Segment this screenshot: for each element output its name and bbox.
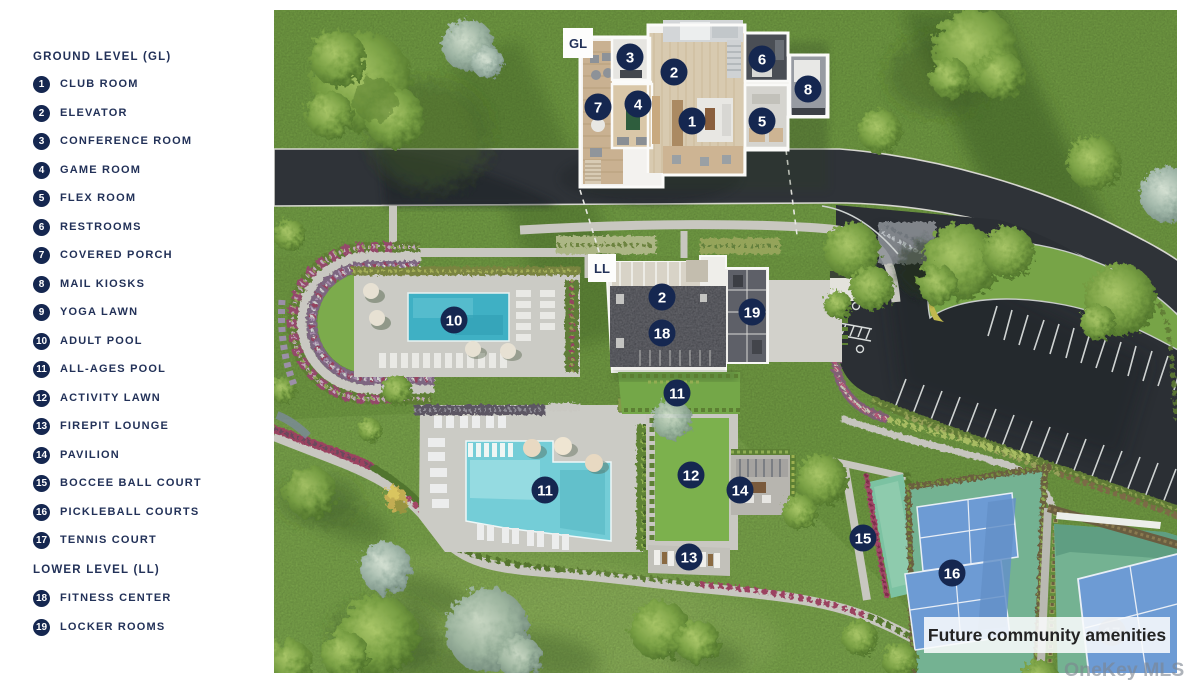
- svg-text:3: 3: [626, 50, 634, 67]
- svg-text:13: 13: [681, 550, 698, 567]
- svg-text:6: 6: [758, 52, 766, 69]
- svg-text:18: 18: [654, 326, 671, 343]
- svg-text:1: 1: [688, 114, 696, 131]
- svg-text:11: 11: [669, 386, 685, 403]
- svg-text:4: 4: [634, 97, 643, 114]
- svg-text:2: 2: [658, 290, 666, 307]
- svg-text:2: 2: [670, 65, 678, 82]
- svg-text:15: 15: [855, 531, 872, 548]
- svg-text:14: 14: [732, 483, 749, 500]
- svg-text:GL: GL: [569, 36, 587, 51]
- svg-text:5: 5: [758, 114, 766, 131]
- svg-text:10: 10: [446, 313, 463, 330]
- svg-text:11: 11: [537, 483, 553, 500]
- svg-text:8: 8: [804, 82, 812, 99]
- svg-text:12: 12: [683, 468, 700, 485]
- svg-text:16: 16: [944, 566, 961, 583]
- svg-text:LL: LL: [594, 261, 610, 276]
- svg-text:7: 7: [594, 100, 602, 117]
- svg-text:19: 19: [744, 305, 761, 322]
